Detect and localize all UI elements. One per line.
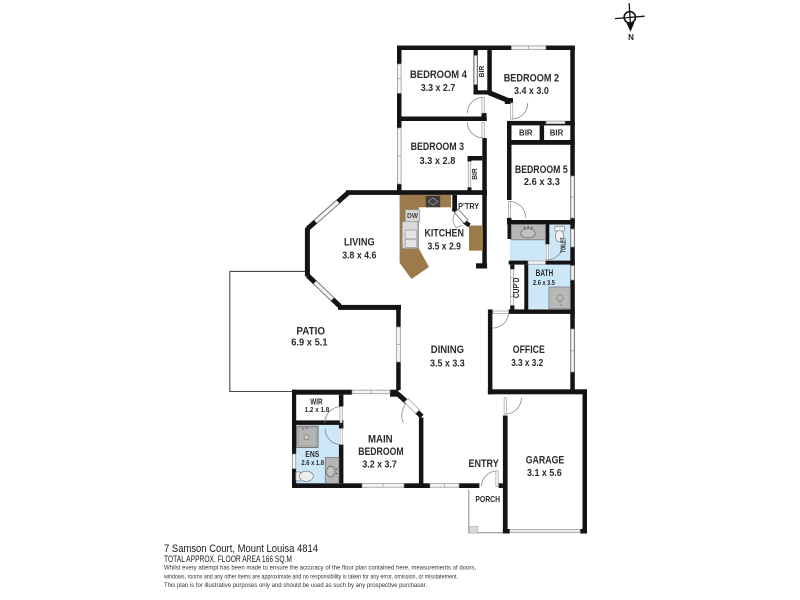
svg-text:3.3 x 2.7: 3.3 x 2.7 xyxy=(421,83,456,94)
svg-text:P’TRY: P’TRY xyxy=(458,202,480,211)
svg-text:DW: DW xyxy=(407,213,418,220)
svg-text:3.1 x 5.6: 3.1 x 5.6 xyxy=(527,468,562,479)
svg-text:GARAGE: GARAGE xyxy=(526,454,565,466)
svg-text:BEDROOM 4: BEDROOM 4 xyxy=(410,69,468,81)
svg-text:3.3 x 2.8: 3.3 x 2.8 xyxy=(419,156,455,167)
svg-text:2.6 x 3.3: 2.6 x 3.3 xyxy=(524,177,560,188)
svg-text:3.5 x 3.3: 3.5 x 3.3 xyxy=(430,358,465,369)
svg-text:BIR: BIR xyxy=(470,168,479,180)
svg-text:TOILET: TOILET xyxy=(559,237,568,252)
svg-text:6.9 x 5.1: 6.9 x 5.1 xyxy=(291,338,328,349)
svg-text:MAIN: MAIN xyxy=(368,434,393,446)
svg-text:TOTAL APPROX. FLOOR AREA 166 S: TOTAL APPROX. FLOOR AREA 166 SQ.M xyxy=(164,554,292,564)
svg-text:BATH: BATH xyxy=(536,268,554,278)
svg-text:DINING: DINING xyxy=(431,344,464,356)
svg-text:OFFICE: OFFICE xyxy=(513,344,545,356)
svg-text:PORCH: PORCH xyxy=(475,494,500,504)
svg-text:windows, rooms and any other i: windows, rooms and any other items are a… xyxy=(163,573,458,580)
svg-text:1.2 x 1.8: 1.2 x 1.8 xyxy=(305,405,330,414)
svg-text:3.8 x 4.6: 3.8 x 4.6 xyxy=(342,251,376,262)
svg-text:N: N xyxy=(628,33,634,42)
svg-text:BEDROOM: BEDROOM xyxy=(358,446,403,458)
svg-text:BIR: BIR xyxy=(519,129,533,138)
svg-text:PATIO: PATIO xyxy=(296,325,325,337)
svg-text:3.2 x 3.7: 3.2 x 3.7 xyxy=(362,460,397,471)
svg-text:Whilst every attempt has been: Whilst every attempt has been made to en… xyxy=(164,564,476,571)
svg-text:CUP’D: CUP’D xyxy=(511,278,521,299)
svg-text:BEDROOM 2: BEDROOM 2 xyxy=(504,73,559,85)
svg-text:BIR: BIR xyxy=(477,65,486,77)
svg-text:3.4 x 3.0: 3.4 x 3.0 xyxy=(514,86,549,97)
svg-text:2.6 x 3.5: 2.6 x 3.5 xyxy=(533,278,555,287)
svg-text:2.6 x 1.8: 2.6 x 1.8 xyxy=(301,458,324,467)
svg-text:3.5 x 2.9: 3.5 x 2.9 xyxy=(427,242,461,253)
svg-text:LIVING: LIVING xyxy=(344,237,375,249)
svg-text:3.3 x 3.2: 3.3 x 3.2 xyxy=(511,358,543,369)
svg-text:BEDROOM 5: BEDROOM 5 xyxy=(515,164,568,176)
svg-text:KITCHEN: KITCHEN xyxy=(425,228,464,240)
svg-text:BEDROOM 3: BEDROOM 3 xyxy=(411,141,464,153)
svg-text:BIR: BIR xyxy=(550,129,564,138)
svg-text:This plan is for illustrative: This plan is for illustrative purposes o… xyxy=(164,582,427,589)
svg-text:ENTRY: ENTRY xyxy=(469,458,500,470)
